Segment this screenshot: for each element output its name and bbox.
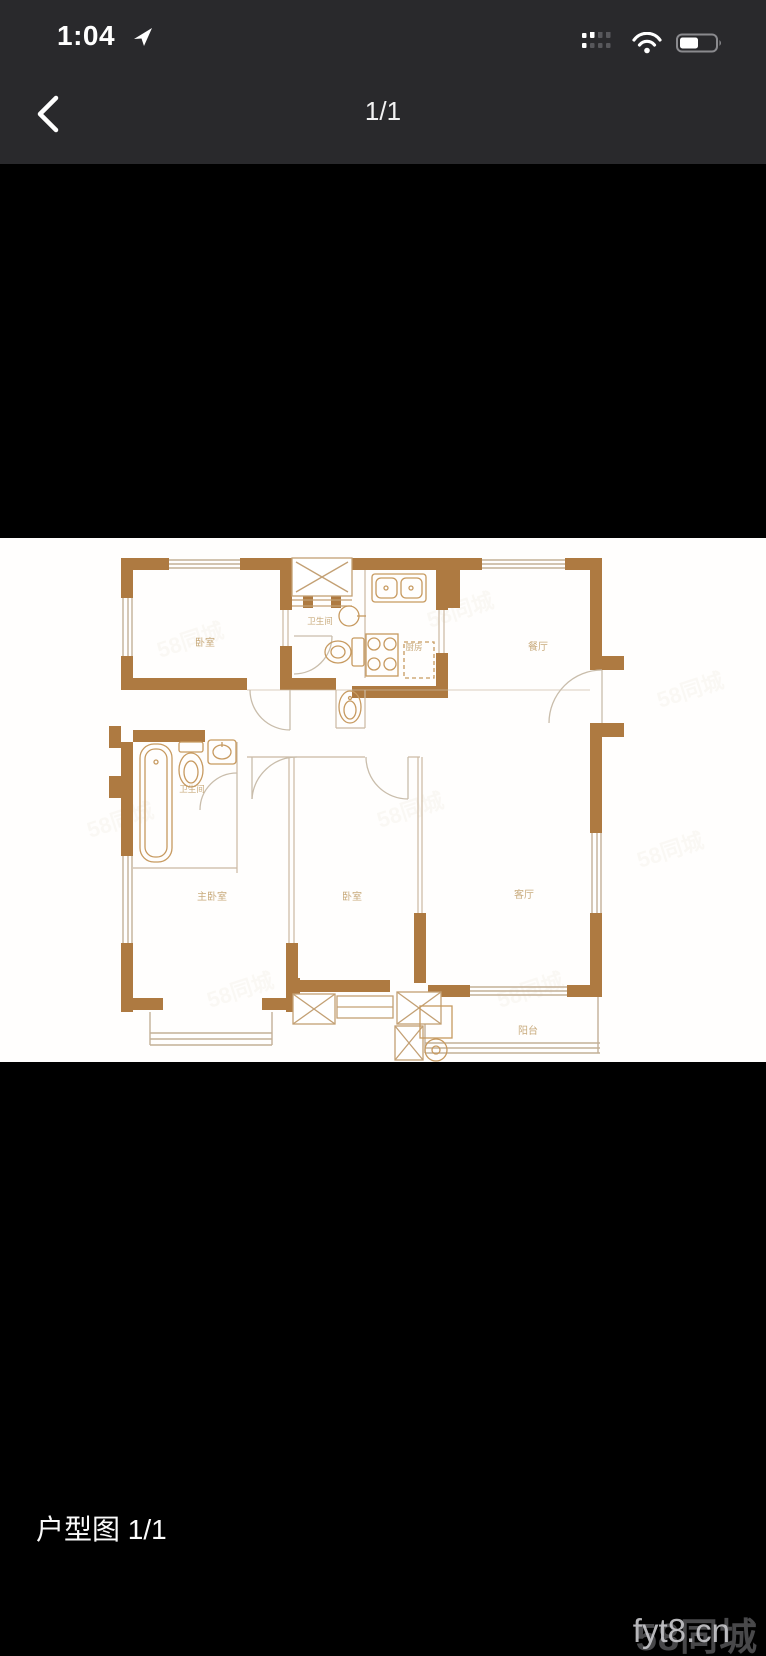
room-label-master-bedroom: 主卧室 [197,890,227,903]
svg-text:58同城: 58同城 [654,668,727,713]
room-label-bath-left: 卫生间 [179,784,205,794]
floor-plan-image[interactable]: 58同城 58同城 58同城 58同城 58同城 58同城 58同城 58同城 [0,538,766,1062]
svg-text:58同城: 58同城 [424,588,497,633]
room-label-dining: 餐厅 [528,640,548,653]
svg-text:58同城: 58同城 [374,788,447,833]
status-icons [582,32,724,59]
room-label-kitchen: 厨房 [405,642,422,652]
room-label-bedroom-mid: 卧室 [342,890,362,903]
page-indicator: 1/1 [0,96,766,127]
room-label-balcony: 阳台 [518,1024,538,1037]
cellular-signal-icon [582,32,618,59]
floor-plan-drawing: 58同城 58同城 58同城 58同城 58同城 58同城 58同城 58同城 [0,538,766,1062]
photo-caption: 户型图 1/1 [36,1508,167,1548]
room-label-living: 客厅 [514,888,534,901]
wifi-icon [632,32,662,59]
svg-text:58同城: 58同城 [494,968,567,1013]
room-label-bedroom-top: 卧室 [195,636,215,649]
svg-text:58同城: 58同城 [634,828,707,873]
status-time: 1:04 [57,20,115,52]
photo-viewer-screen: 1:04 [0,0,766,1656]
watermark-site: fyt8.cn [633,1612,730,1650]
watermark: 58同城 fyt8.cn [598,1606,758,1656]
nav-bar: 1/1 [0,88,766,148]
room-label-bath-top: 卫生间 [307,616,333,626]
location-services-icon [132,26,154,53]
svg-text:58同城: 58同城 [84,798,157,843]
svg-text:58同城: 58同城 [154,618,227,663]
battery-icon [676,32,724,59]
header: 1:04 [0,0,766,164]
doors [200,636,602,810]
